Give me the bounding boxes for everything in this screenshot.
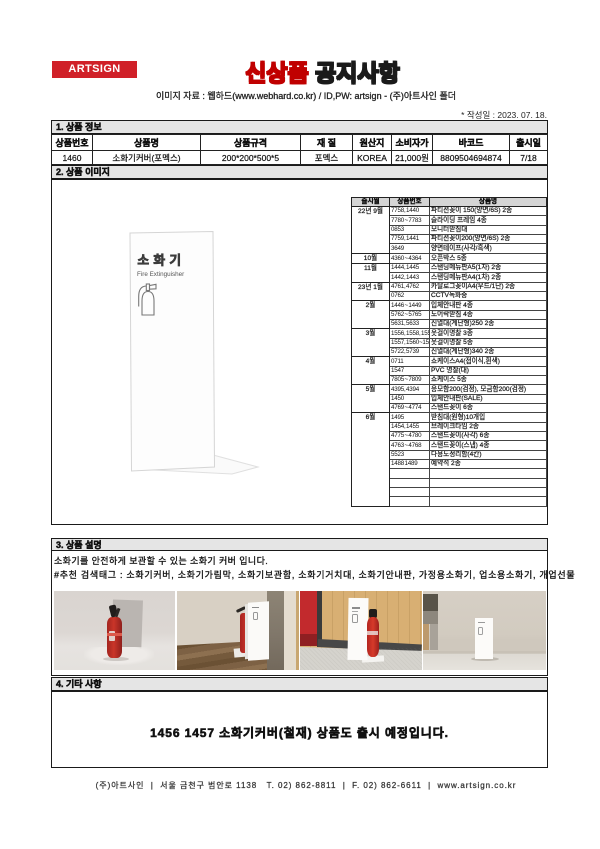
svg-text:소 화 기: 소 화 기 xyxy=(138,253,182,268)
svg-text:Fire Extinguisher: Fire Extinguisher xyxy=(137,271,184,278)
